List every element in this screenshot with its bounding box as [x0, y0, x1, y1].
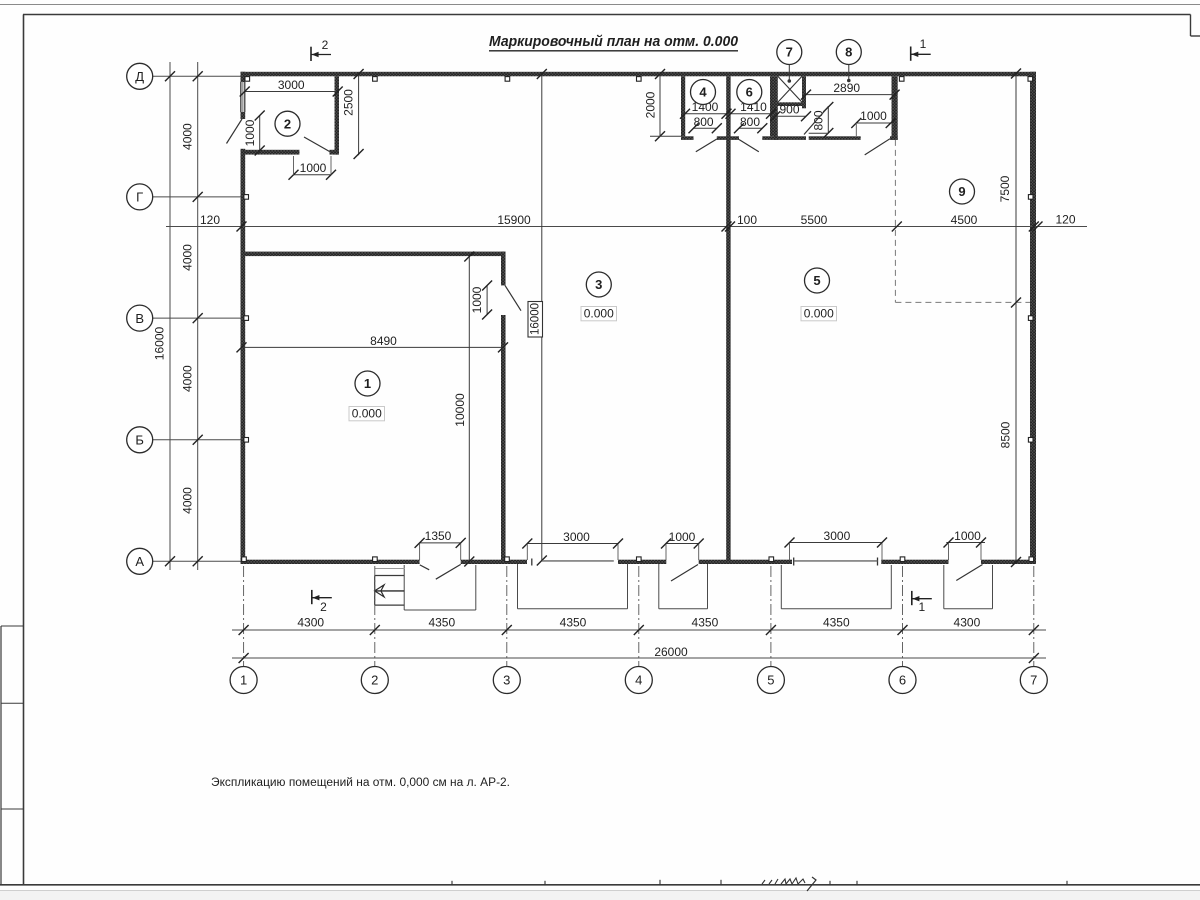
svg-text:4350: 4350	[692, 616, 719, 630]
svg-text:3: 3	[503, 673, 510, 688]
svg-text:100: 100	[737, 213, 757, 227]
svg-text:Д: Д	[135, 69, 144, 84]
svg-text:0.000: 0.000	[804, 306, 834, 320]
svg-text:2890: 2890	[833, 81, 860, 95]
svg-text:2: 2	[320, 600, 327, 614]
svg-text:А: А	[135, 554, 144, 569]
svg-text:6: 6	[899, 673, 906, 688]
svg-text:4000: 4000	[181, 123, 195, 150]
svg-text:Маркировочный план на отм. 0.0: Маркировочный план на отм. 0.000	[489, 33, 739, 50]
svg-text:Г: Г	[136, 190, 143, 205]
svg-text:1000: 1000	[954, 529, 981, 543]
svg-text:4300: 4300	[954, 616, 981, 630]
svg-text:3000: 3000	[563, 530, 590, 544]
svg-text:120: 120	[1055, 213, 1075, 227]
svg-text:16000: 16000	[530, 303, 542, 335]
svg-text:1: 1	[364, 376, 371, 391]
svg-text:0.000: 0.000	[352, 406, 382, 420]
svg-text:15900: 15900	[497, 213, 531, 227]
svg-text:1000: 1000	[243, 119, 257, 146]
svg-text:8500: 8500	[999, 421, 1013, 448]
svg-text:4300: 4300	[297, 616, 324, 630]
svg-text:9: 9	[958, 184, 965, 199]
svg-text:1000: 1000	[669, 530, 696, 544]
svg-text:Экспликацию помещений на отм.: Экспликацию помещений на отм. 0,000 см н…	[211, 777, 510, 789]
svg-text:8: 8	[845, 45, 852, 60]
svg-text:4000: 4000	[181, 244, 195, 271]
svg-text:800: 800	[740, 115, 760, 129]
svg-text:1000: 1000	[300, 161, 327, 175]
svg-text:4500: 4500	[951, 213, 978, 227]
svg-text:2: 2	[371, 673, 378, 688]
svg-text:8490: 8490	[370, 334, 397, 348]
svg-text:4350: 4350	[823, 616, 850, 630]
svg-text:В: В	[135, 311, 144, 326]
svg-text:10000: 10000	[453, 393, 467, 427]
svg-text:800: 800	[812, 110, 826, 130]
svg-text:7: 7	[786, 45, 793, 60]
svg-text:800: 800	[694, 115, 714, 129]
svg-text:7: 7	[1030, 673, 1037, 688]
svg-text:3000: 3000	[824, 529, 851, 543]
svg-text:4: 4	[635, 673, 642, 688]
svg-text:5500: 5500	[801, 213, 828, 227]
svg-text:2500: 2500	[342, 89, 356, 116]
svg-text:2: 2	[322, 38, 329, 52]
svg-text:4000: 4000	[181, 487, 195, 514]
svg-text:1: 1	[240, 673, 247, 688]
svg-text:1000: 1000	[860, 109, 887, 123]
svg-text:5: 5	[813, 273, 820, 288]
svg-text:Б: Б	[135, 432, 144, 447]
svg-text:1000: 1000	[470, 286, 484, 313]
svg-text:4000: 4000	[181, 365, 195, 392]
svg-text:1: 1	[920, 37, 927, 51]
svg-text:4: 4	[699, 85, 707, 100]
svg-text:0.000: 0.000	[584, 306, 614, 320]
svg-text:2: 2	[284, 116, 291, 131]
svg-text:4350: 4350	[560, 616, 587, 630]
svg-text:5: 5	[767, 673, 774, 688]
svg-text:3: 3	[595, 277, 602, 292]
svg-text:26000: 26000	[654, 645, 688, 659]
svg-text:16000: 16000	[153, 326, 167, 360]
svg-text:1350: 1350	[425, 529, 452, 543]
svg-text:3000: 3000	[278, 78, 305, 92]
svg-text:1: 1	[919, 600, 926, 614]
svg-text:120: 120	[200, 213, 220, 227]
svg-text:7500: 7500	[998, 175, 1012, 202]
svg-text:4350: 4350	[428, 616, 455, 630]
svg-text:900: 900	[779, 103, 799, 117]
svg-text:2000: 2000	[644, 91, 658, 118]
svg-text:6: 6	[746, 85, 753, 100]
